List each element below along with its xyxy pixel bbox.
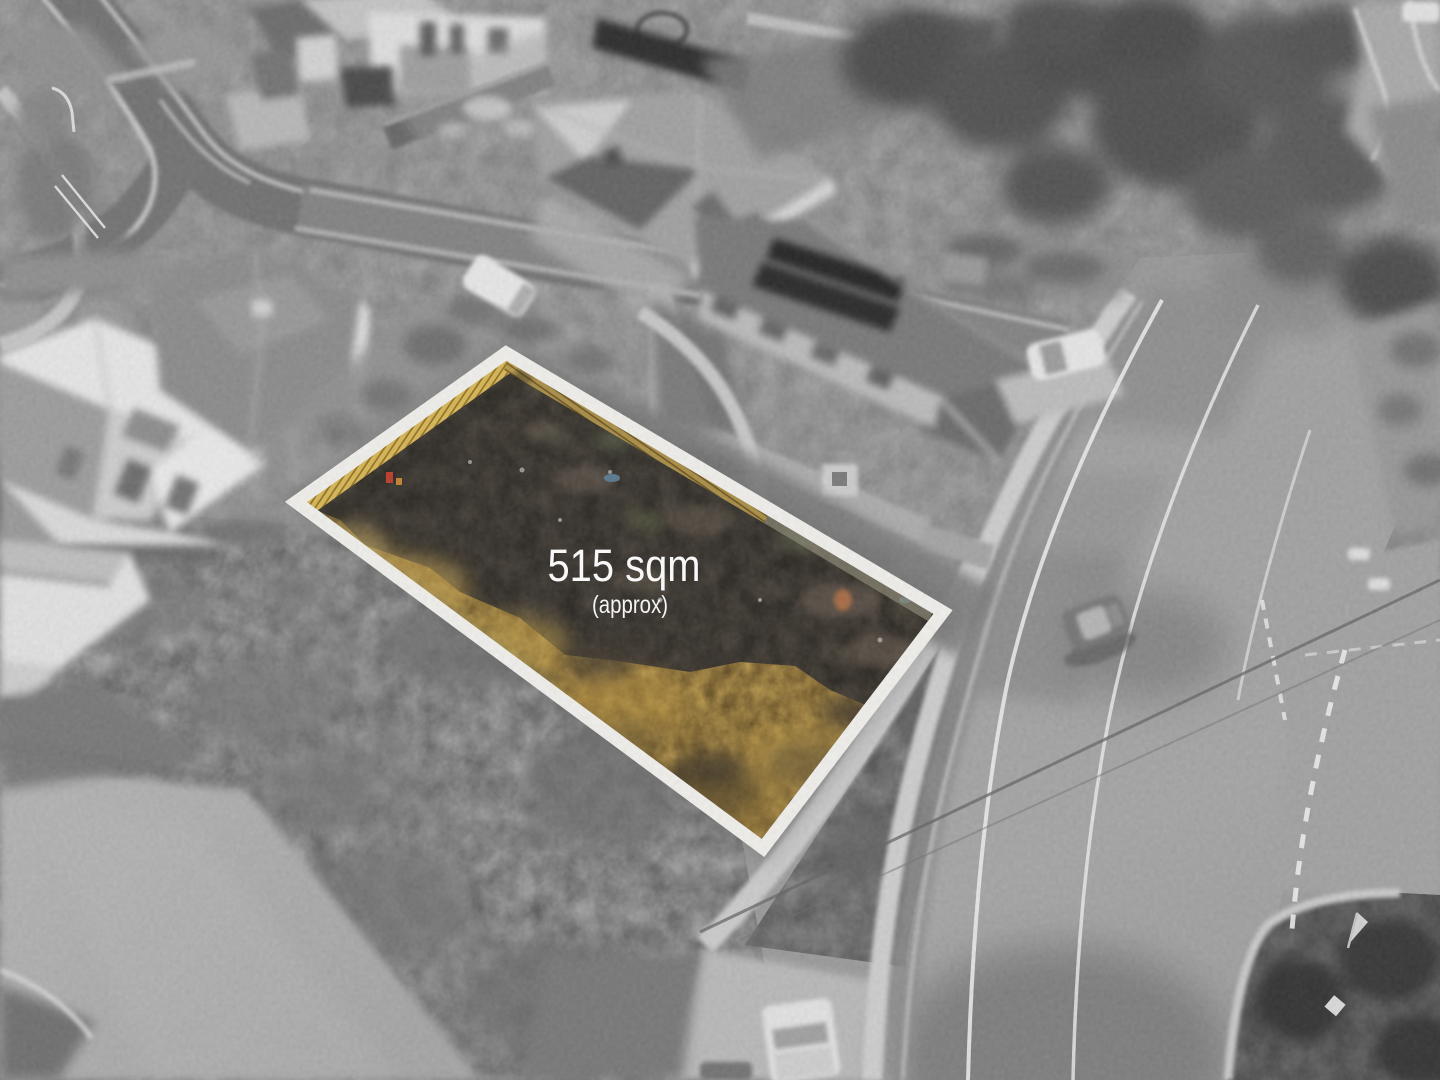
svg-text:515 sqm: 515 sqm	[548, 540, 701, 591]
svg-text:(approx): (approx)	[592, 591, 668, 619]
